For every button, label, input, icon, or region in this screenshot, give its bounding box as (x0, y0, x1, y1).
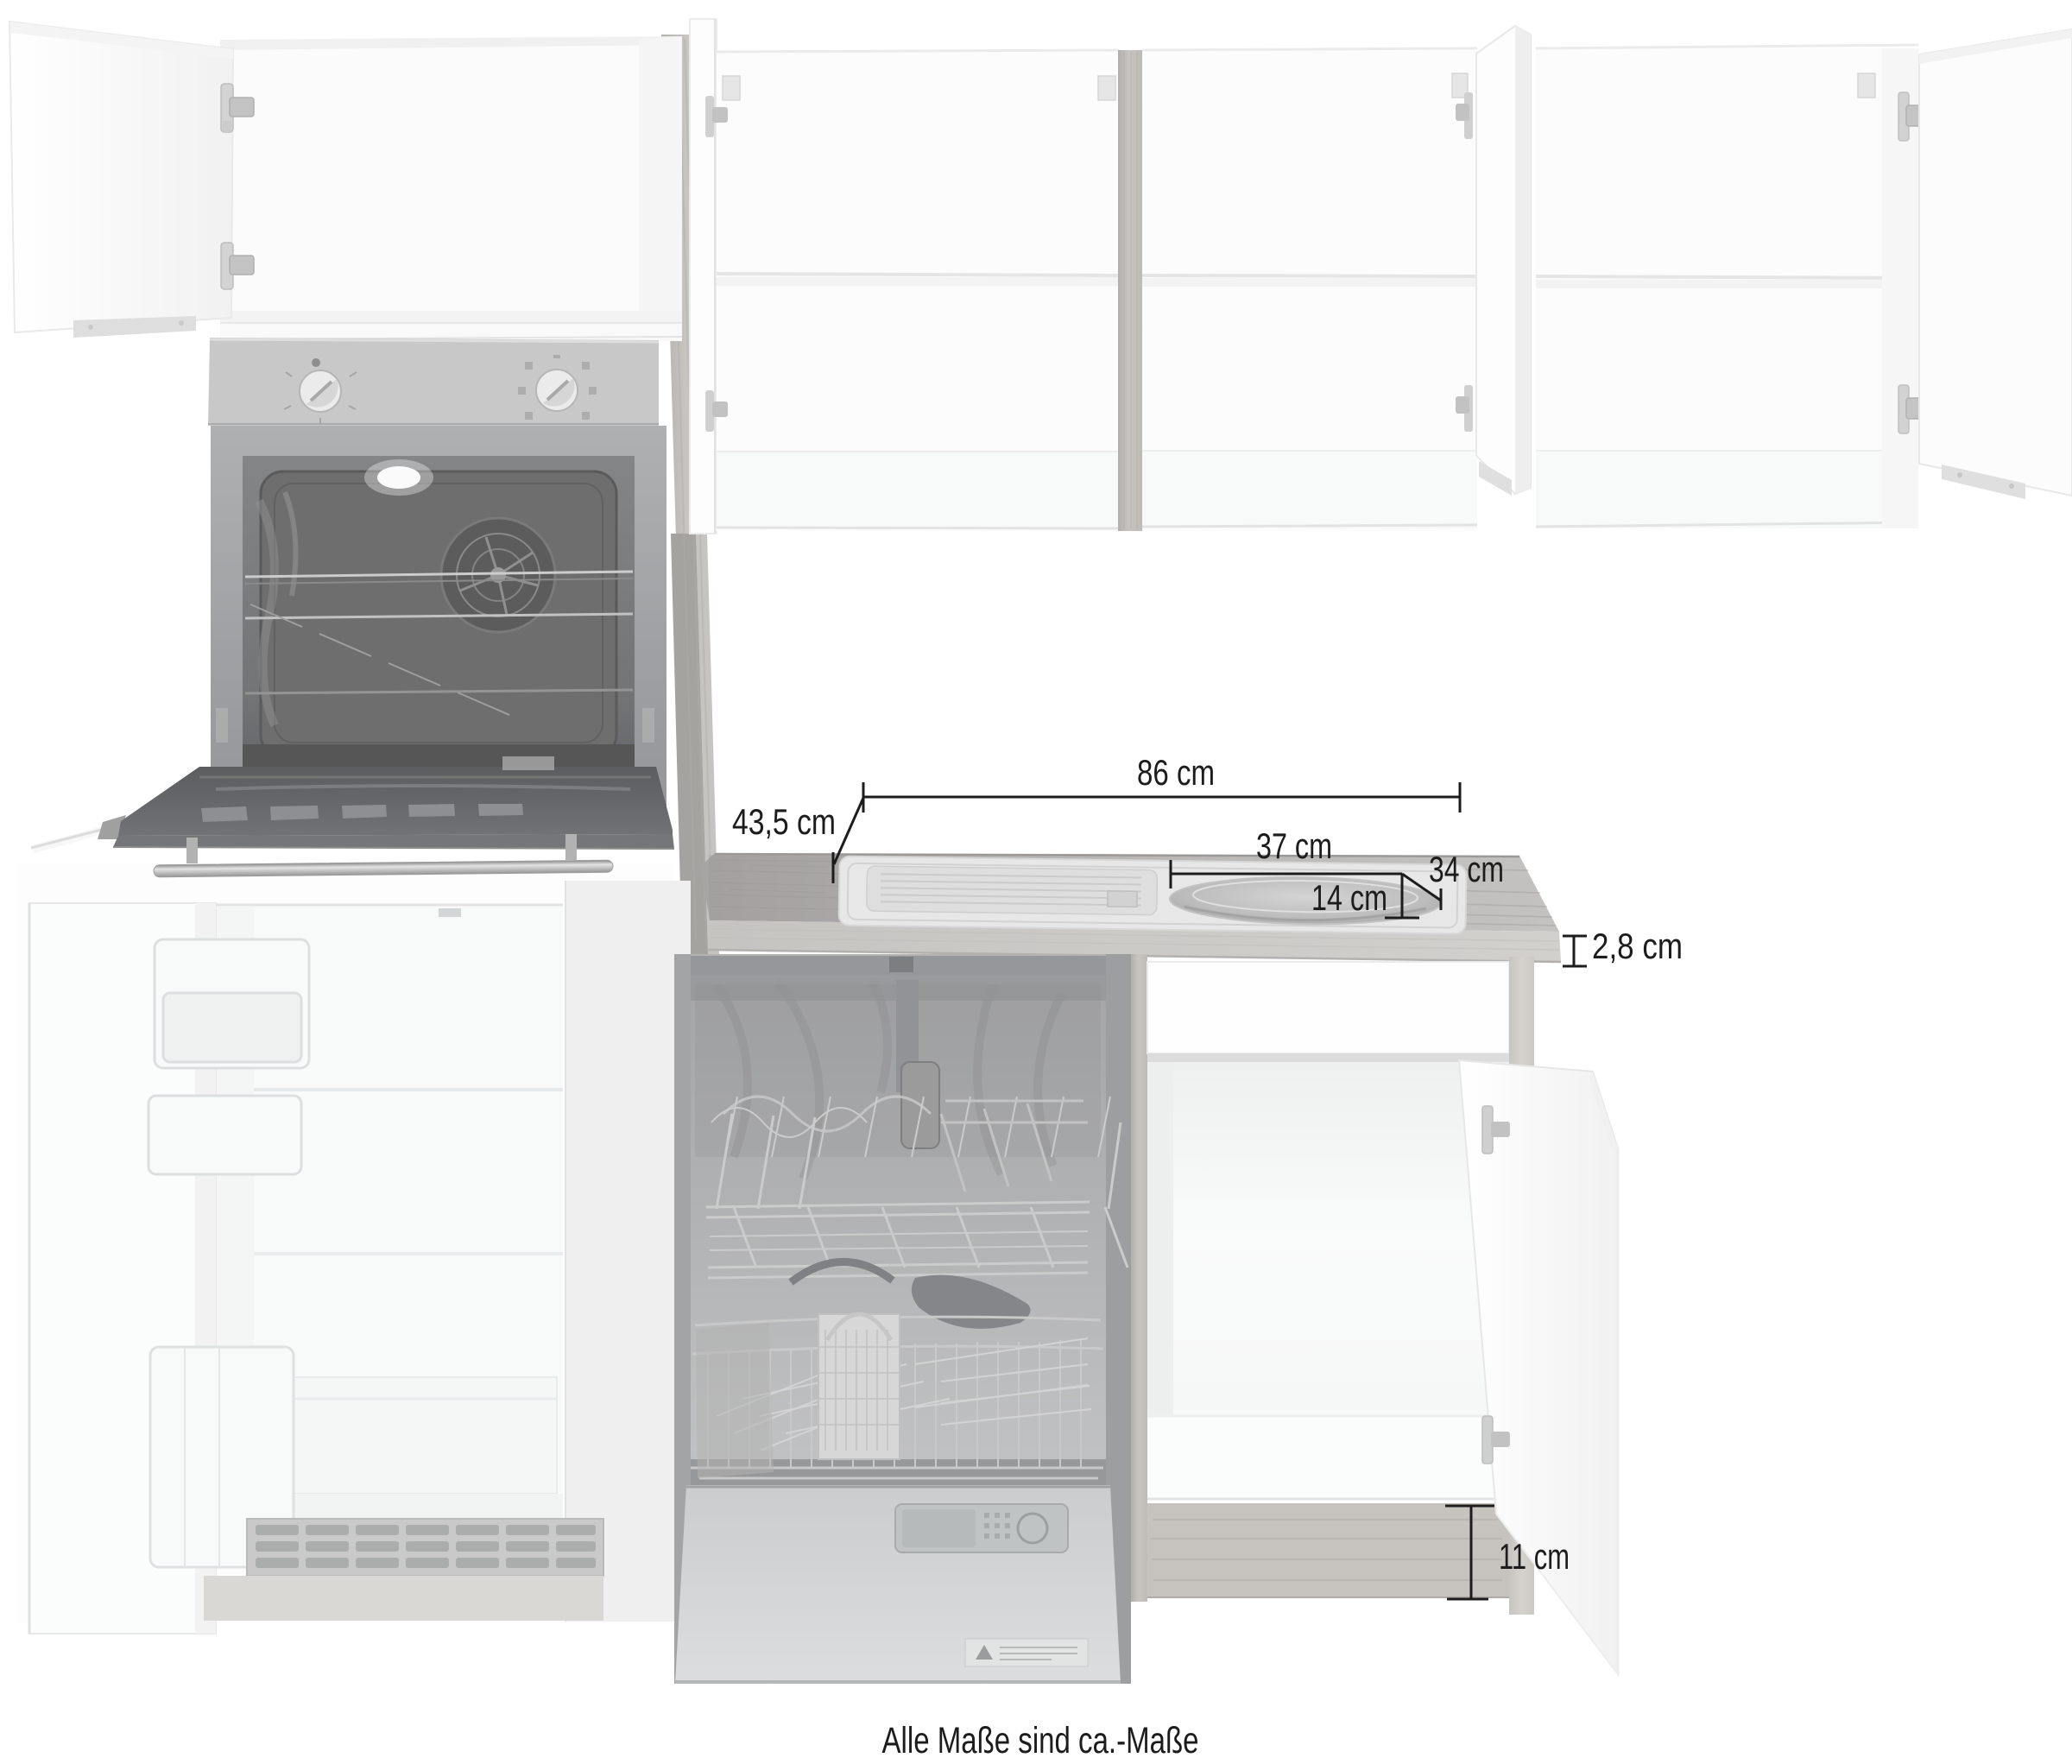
svg-text:37 cm: 37 cm (1256, 825, 1332, 866)
svg-text:11 cm: 11 cm (1499, 1536, 1570, 1577)
svg-text:Alle Maße sind ca.-Maße: Alle Maße sind ca.-Maße (882, 1720, 1199, 1761)
svg-text:14 cm: 14 cm (1311, 877, 1387, 918)
svg-text:34 cm: 34 cm (1429, 849, 1504, 889)
svg-text:43,5 cm: 43,5 cm (732, 801, 836, 842)
svg-text:2,8 cm: 2,8 cm (1592, 926, 1683, 966)
svg-text:86 cm: 86 cm (1137, 752, 1215, 793)
